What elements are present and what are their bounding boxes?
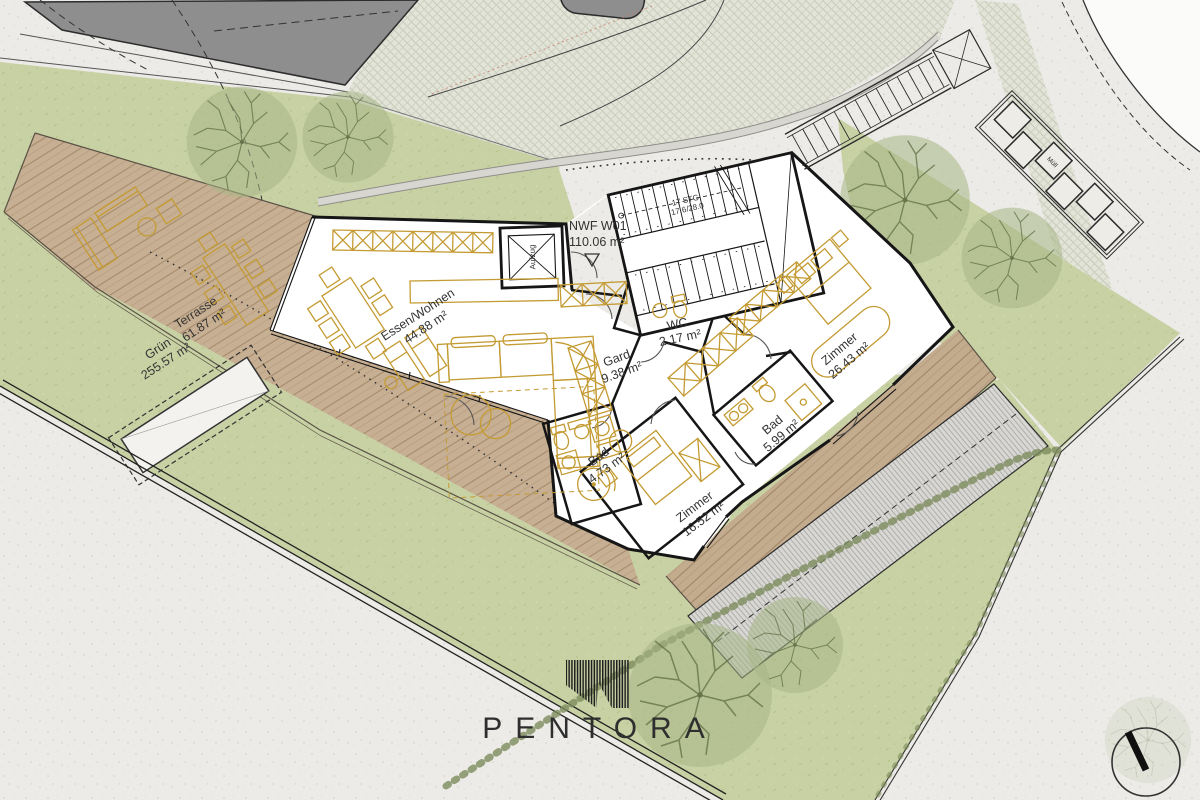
svg-text:NWF W01: NWF W01	[569, 219, 627, 233]
elevator-label: Aufzug	[528, 244, 538, 269]
floor-plan-page: Aufzug 17 STG 17.6/28.0	[0, 0, 1200, 800]
site-plan-svg: Aufzug 17 STG 17.6/28.0	[0, 0, 1200, 800]
pentora-wordmark: PENTORA	[482, 712, 717, 745]
svg-text:110.06 m²: 110.06 m²	[569, 235, 624, 249]
